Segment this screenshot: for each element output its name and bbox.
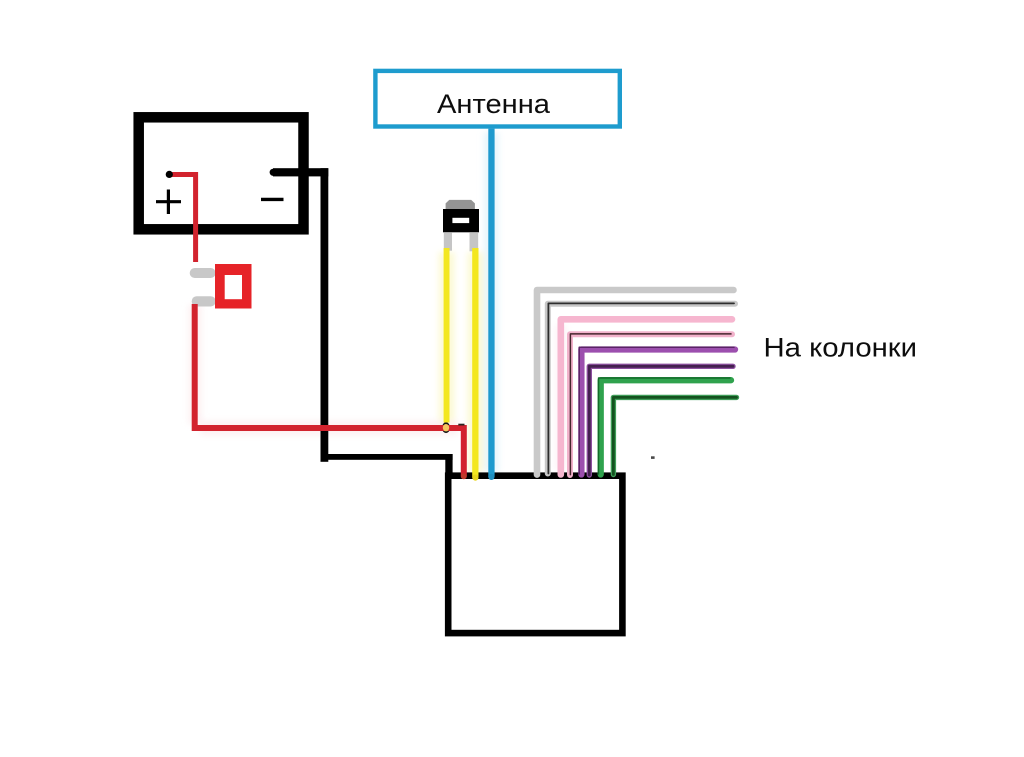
svg-text:На колонки: На колонки xyxy=(764,333,918,363)
svg-text:Антенна: Антенна xyxy=(437,89,551,119)
